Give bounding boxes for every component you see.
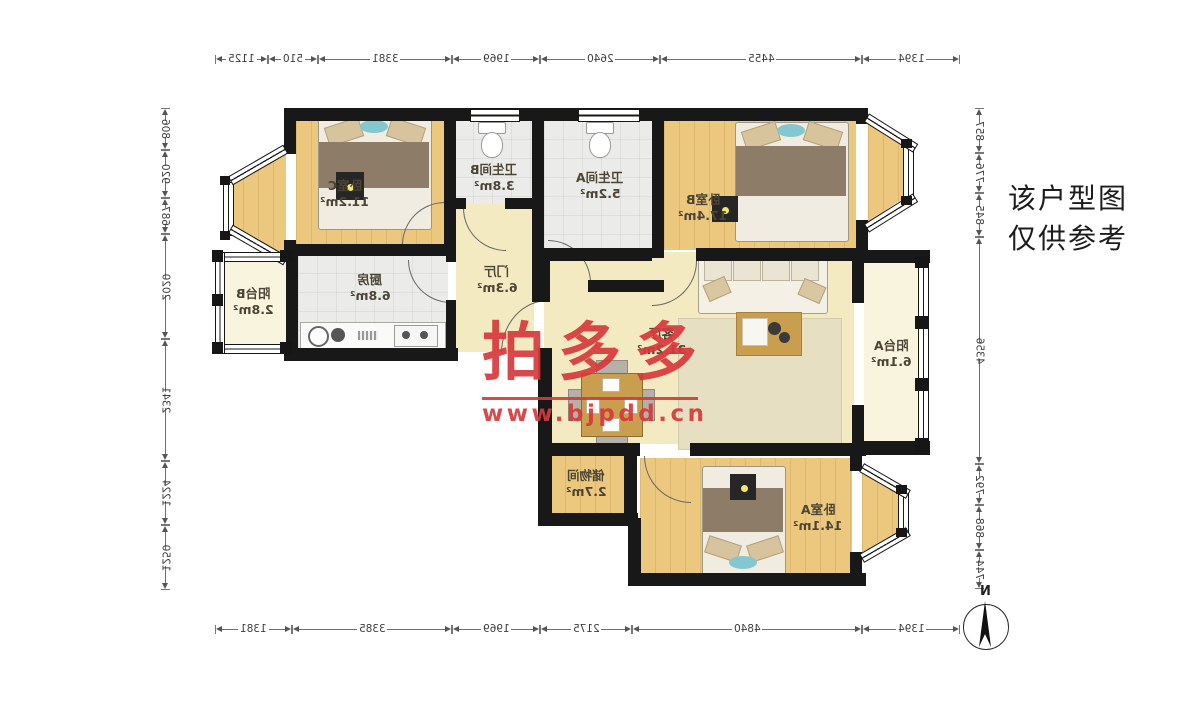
dim-top-2: 510: [268, 52, 318, 66]
dim-top-4: 1969: [452, 52, 540, 66]
dim-left-5: 2341: [158, 339, 172, 461]
wall: [588, 280, 664, 292]
bed-cushion: [360, 120, 388, 133]
room-label-bathB: 卫生间B 3.8m²: [444, 162, 544, 194]
wall-post: [901, 139, 912, 148]
room-area: 5.2m²: [580, 186, 621, 202]
wall-post: [212, 342, 223, 354]
dim-right-1: 857: [972, 108, 986, 153]
dim-top-6: 4455: [660, 52, 862, 66]
dim-line: [269, 629, 285, 630]
wall: [850, 443, 862, 471]
dim-value: 1381: [238, 623, 269, 635]
room-label-balconyB: 阳台B 2.8m²: [212, 286, 294, 318]
lamp-icon: [741, 485, 748, 492]
dim-value: 792: [971, 474, 987, 494]
tick: [959, 55, 960, 64]
dim-value: 687: [157, 206, 173, 226]
dim-top-7: 1394: [862, 52, 960, 66]
disclaimer-line2: 仅供参考: [1008, 220, 1128, 260]
dim-line: [511, 59, 533, 60]
dim-value: 2640: [585, 53, 616, 65]
table-bowl: [768, 322, 781, 335]
dim-line: [547, 59, 585, 60]
dim-line: [926, 629, 953, 630]
dim-right-4: 4356: [972, 237, 986, 464]
dim-line: [165, 346, 166, 392]
room-name: 门厅: [484, 264, 509, 280]
dim-value: 845: [971, 205, 987, 225]
wall: [690, 443, 866, 456]
wall-post: [896, 528, 907, 537]
dim-line: [639, 629, 732, 630]
dim-bottom-4: 2175: [540, 622, 632, 636]
wall: [446, 300, 456, 352]
dim-line: [547, 629, 571, 630]
dim-line: [926, 59, 953, 60]
wall-post: [915, 256, 929, 268]
room-label-kitchen: 厨房 6.8m²: [320, 272, 420, 304]
wall-post: [280, 250, 292, 262]
tick: [959, 625, 960, 634]
room-label-hall: 门厅 6.3m²: [448, 264, 546, 296]
dim-value: 1969: [481, 623, 512, 635]
dim-value: 920: [157, 164, 173, 184]
dim-line: [387, 629, 445, 630]
floorplan-page: 卧室C 11.2m² 卫生间B 3.8m² 卫生间A 5.2m² 卧室B 17.…: [0, 0, 1192, 701]
dim-value: 806: [157, 119, 173, 139]
bay-window: [903, 146, 914, 200]
watermark-url: www.bjpdd.cn: [482, 401, 708, 427]
room-name: 卫生间A: [576, 170, 623, 186]
dim-line: [615, 59, 653, 60]
wall: [852, 263, 864, 303]
wall-post: [220, 176, 230, 185]
watermark-brand: 拍多多: [482, 302, 710, 393]
wall: [284, 108, 866, 121]
wall: [284, 244, 456, 256]
dim-value: 3381: [370, 53, 401, 65]
disclaimer-line1: 该户型图: [1008, 180, 1128, 220]
dim-line: [325, 59, 370, 60]
wall: [284, 348, 458, 361]
dim-left-1: 806: [158, 108, 172, 150]
wall: [538, 513, 638, 526]
room-area: 14.1m²: [793, 518, 842, 534]
dim-value: 744: [971, 559, 987, 579]
room-label-bedroomB: 卧室B 17.4m²: [648, 192, 758, 224]
wall-post: [915, 438, 929, 452]
room-name: 卧室C: [328, 178, 362, 194]
room-area: 3.8m²: [474, 178, 515, 194]
room-label-bedroomA: 卧室A 14.1m²: [768, 502, 868, 534]
wall: [544, 248, 652, 261]
sofa-cushion: [762, 259, 790, 281]
wall: [444, 198, 466, 209]
dim-value: 868: [971, 517, 987, 537]
room-label-bathA: 卫生间A 5.2m²: [550, 170, 650, 202]
dim-value: 776: [971, 163, 987, 183]
sofa-cushion: [733, 259, 761, 281]
dim-left-2: 920: [158, 150, 172, 198]
dim-left-7: 1250: [158, 525, 172, 590]
dim-top-1: 1125: [215, 52, 268, 66]
dim-bottom-5: 4840: [632, 622, 862, 636]
dim-left-3: 687: [158, 198, 172, 234]
wall-post: [915, 316, 929, 329]
wall: [696, 248, 868, 261]
north-letter: N: [980, 584, 991, 599]
dim-line: [869, 59, 896, 60]
dim-line: [511, 629, 533, 630]
wall: [284, 108, 296, 154]
dim-line: [762, 629, 855, 630]
dim-bottom-3: 1969: [452, 622, 540, 636]
toilet-bowl: [589, 132, 611, 158]
bed-blanket: [736, 146, 846, 196]
dim-line: [869, 629, 896, 630]
sink: [308, 326, 329, 347]
watermark-line: [482, 397, 698, 400]
room-area: 6.8m²: [350, 288, 391, 304]
disclaimer-note: 该户型图 仅供参考: [1008, 180, 1128, 260]
dim-right-6: 868: [972, 505, 986, 550]
room-name: 储物间: [567, 468, 605, 484]
dim-top-3: 3381: [318, 52, 452, 66]
room-name: 卫生间B: [470, 162, 517, 178]
dim-value: 510: [281, 53, 305, 65]
dim-line: [459, 629, 481, 630]
room-name: 厨房: [357, 272, 382, 288]
window: [470, 109, 520, 122]
dim-value: 1125: [226, 53, 257, 65]
wall: [628, 573, 866, 586]
dim-value: 3385: [357, 623, 388, 635]
room-area: 17.4m²: [678, 208, 727, 224]
compass-north-label: N: [963, 584, 1007, 599]
room-name: 阳台A: [874, 338, 909, 354]
tick: [161, 589, 170, 590]
dim-line: [400, 59, 445, 60]
dim-value: 4455: [746, 53, 777, 65]
dim-right-5: 792: [972, 464, 986, 505]
dim-value: 1394: [896, 623, 927, 635]
dim-line: [459, 59, 481, 60]
wall-post: [280, 342, 292, 354]
dim-value: 2175: [571, 623, 602, 635]
wall: [446, 252, 456, 262]
room-name: 卧室A: [801, 502, 836, 518]
dim-left-4: 2020: [158, 234, 172, 339]
dim-value: 1224: [157, 480, 173, 507]
dim-value: 1394: [896, 53, 927, 65]
burner-icon: [420, 331, 428, 339]
dim-value: 1250: [157, 544, 173, 571]
room-area: 11.2m²: [320, 194, 369, 210]
bed-cushion: [777, 124, 805, 137]
dim-top-5: 2640: [540, 52, 660, 66]
wall-post: [212, 250, 223, 262]
dim-bottom-1: 1381: [215, 622, 292, 636]
wall-post: [915, 378, 929, 391]
dim-line: [299, 629, 357, 630]
room-area: 6.1m²: [871, 354, 912, 370]
burner-icon: [402, 331, 410, 339]
room-label-bedroomC: 卧室C 11.2m²: [285, 178, 405, 210]
stove-burner: [331, 328, 345, 342]
dim-line: [601, 629, 625, 630]
bed-cushion: [729, 556, 757, 569]
dim-value: 857: [971, 120, 987, 140]
dim-line: [165, 408, 166, 454]
dim-line: [222, 629, 238, 630]
room-area: 2.8m²: [233, 302, 274, 318]
dim-right-2: 776: [972, 153, 986, 193]
dim-value: 1969: [481, 53, 512, 65]
dim-right-3: 845: [972, 193, 986, 237]
dim-line: [667, 59, 746, 60]
room-label-balconyA: 阳台A 6.1m²: [846, 338, 936, 370]
dim-bottom-2: 3385: [292, 622, 452, 636]
room-label-storage: 储物间 2.7m²: [536, 468, 636, 500]
room-area: 2.7m²: [566, 484, 607, 500]
dim-left-6: 1224: [158, 461, 172, 525]
toilet-bowl: [481, 132, 503, 158]
wall: [652, 108, 664, 258]
dim-value: 2341: [157, 387, 173, 414]
cooktop: [394, 325, 438, 347]
wall: [852, 405, 864, 443]
dim-value: 2020: [157, 273, 173, 300]
room-area: 6.3m²: [477, 280, 518, 296]
window: [578, 109, 640, 122]
dim-line: [776, 59, 855, 60]
stove-grill: [358, 331, 378, 340]
table-bowl: [779, 332, 790, 343]
room-name: 卧室B: [686, 192, 721, 208]
room-name: 阳台B: [236, 286, 271, 302]
wall-post: [901, 196, 912, 205]
wall-post: [896, 485, 907, 494]
wall-post: [220, 231, 230, 240]
dim-line: [979, 244, 980, 343]
dim-bottom-6: 1394: [862, 622, 960, 636]
dim-value: 4840: [732, 623, 763, 635]
dim-value: 4356: [971, 337, 987, 364]
table-tray: [742, 318, 768, 346]
dim-line: [979, 359, 980, 458]
